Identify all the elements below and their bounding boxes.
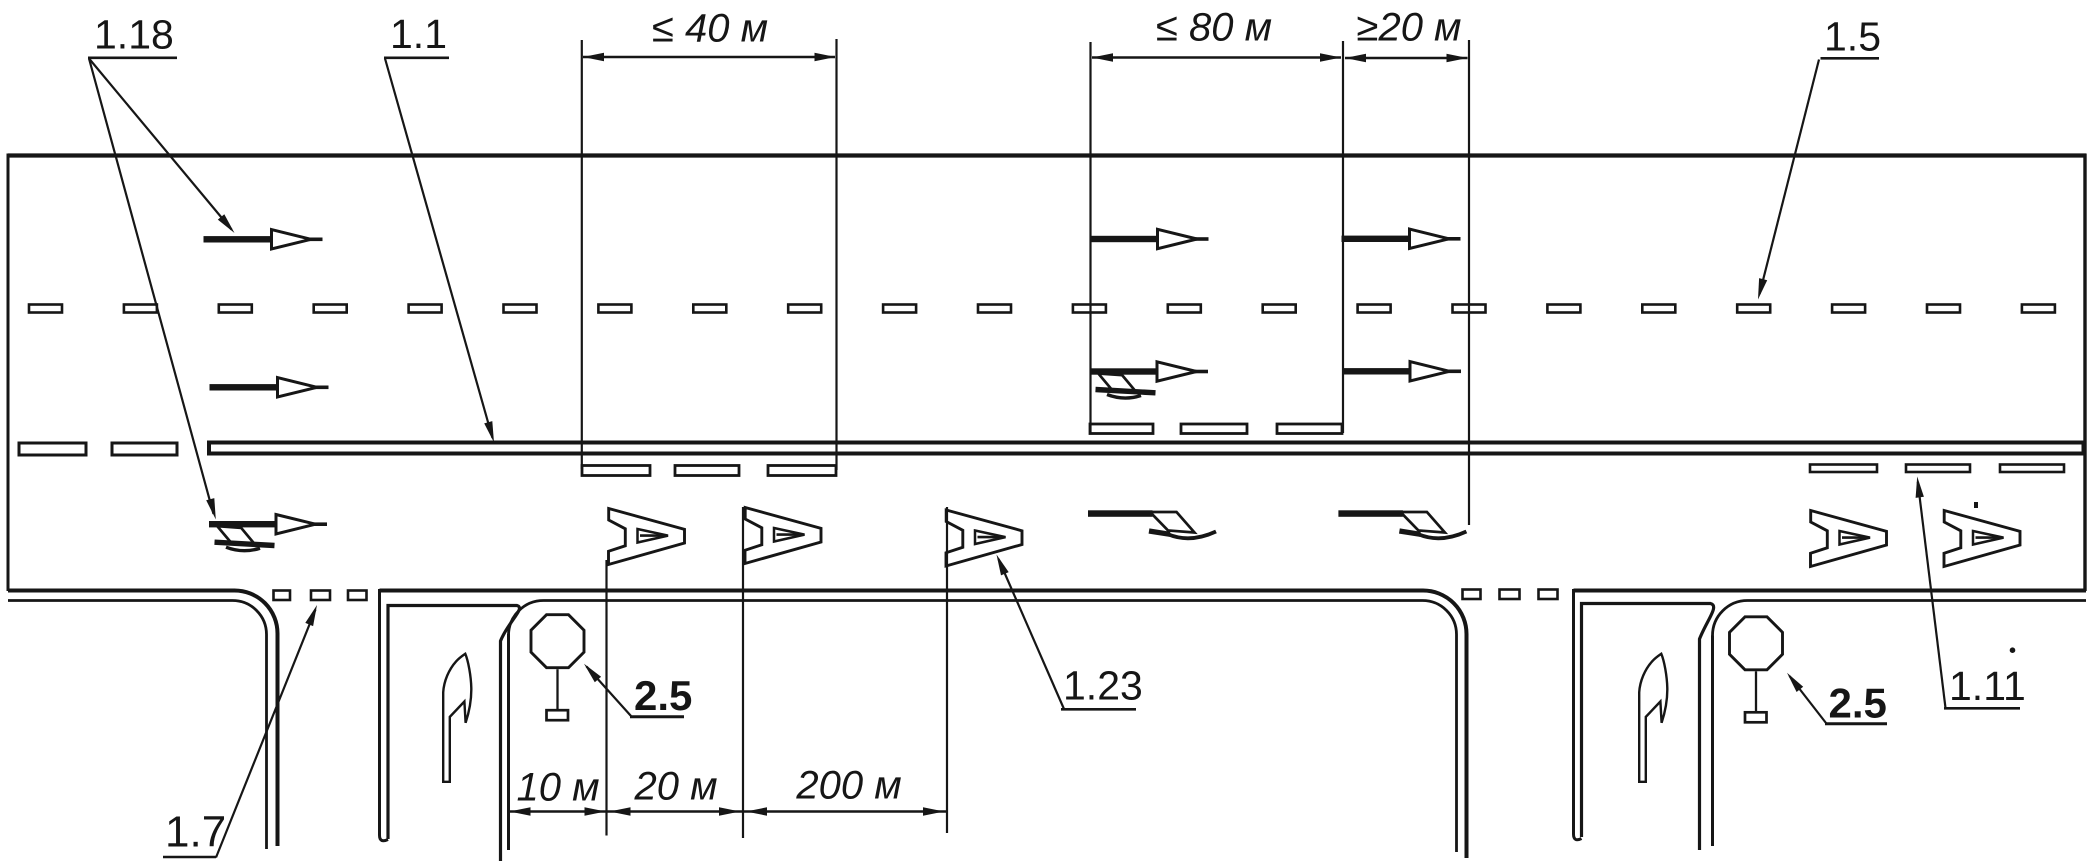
svg-text:2.5: 2.5 <box>1829 680 1887 727</box>
svg-text:1.7: 1.7 <box>165 808 226 857</box>
svg-text:1.1: 1.1 <box>390 11 447 57</box>
svg-text:≤ 80 м: ≤ 80 м <box>1156 6 1272 50</box>
svg-text:200 м: 200 м <box>795 764 901 808</box>
svg-text:1.11: 1.11 <box>1949 663 2026 709</box>
svg-text:≥20 м: ≥20 м <box>1357 6 1462 50</box>
svg-text:1.18: 1.18 <box>94 12 174 58</box>
svg-text:20 м: 20 м <box>633 765 717 809</box>
svg-text:≤ 40 м: ≤ 40 м <box>652 7 768 51</box>
svg-text:10 м: 10 м <box>516 766 599 810</box>
svg-text:2.5: 2.5 <box>634 672 692 719</box>
svg-text:1.5: 1.5 <box>1824 14 1881 60</box>
svg-text:1.23: 1.23 <box>1063 663 1143 709</box>
